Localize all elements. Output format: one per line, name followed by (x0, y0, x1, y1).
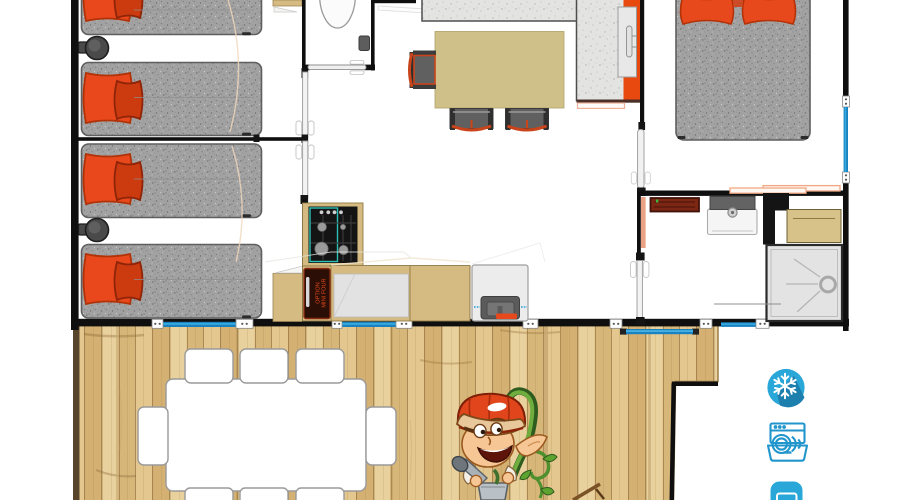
svg-text:MINI FOUR: MINI FOUR (322, 278, 328, 307)
